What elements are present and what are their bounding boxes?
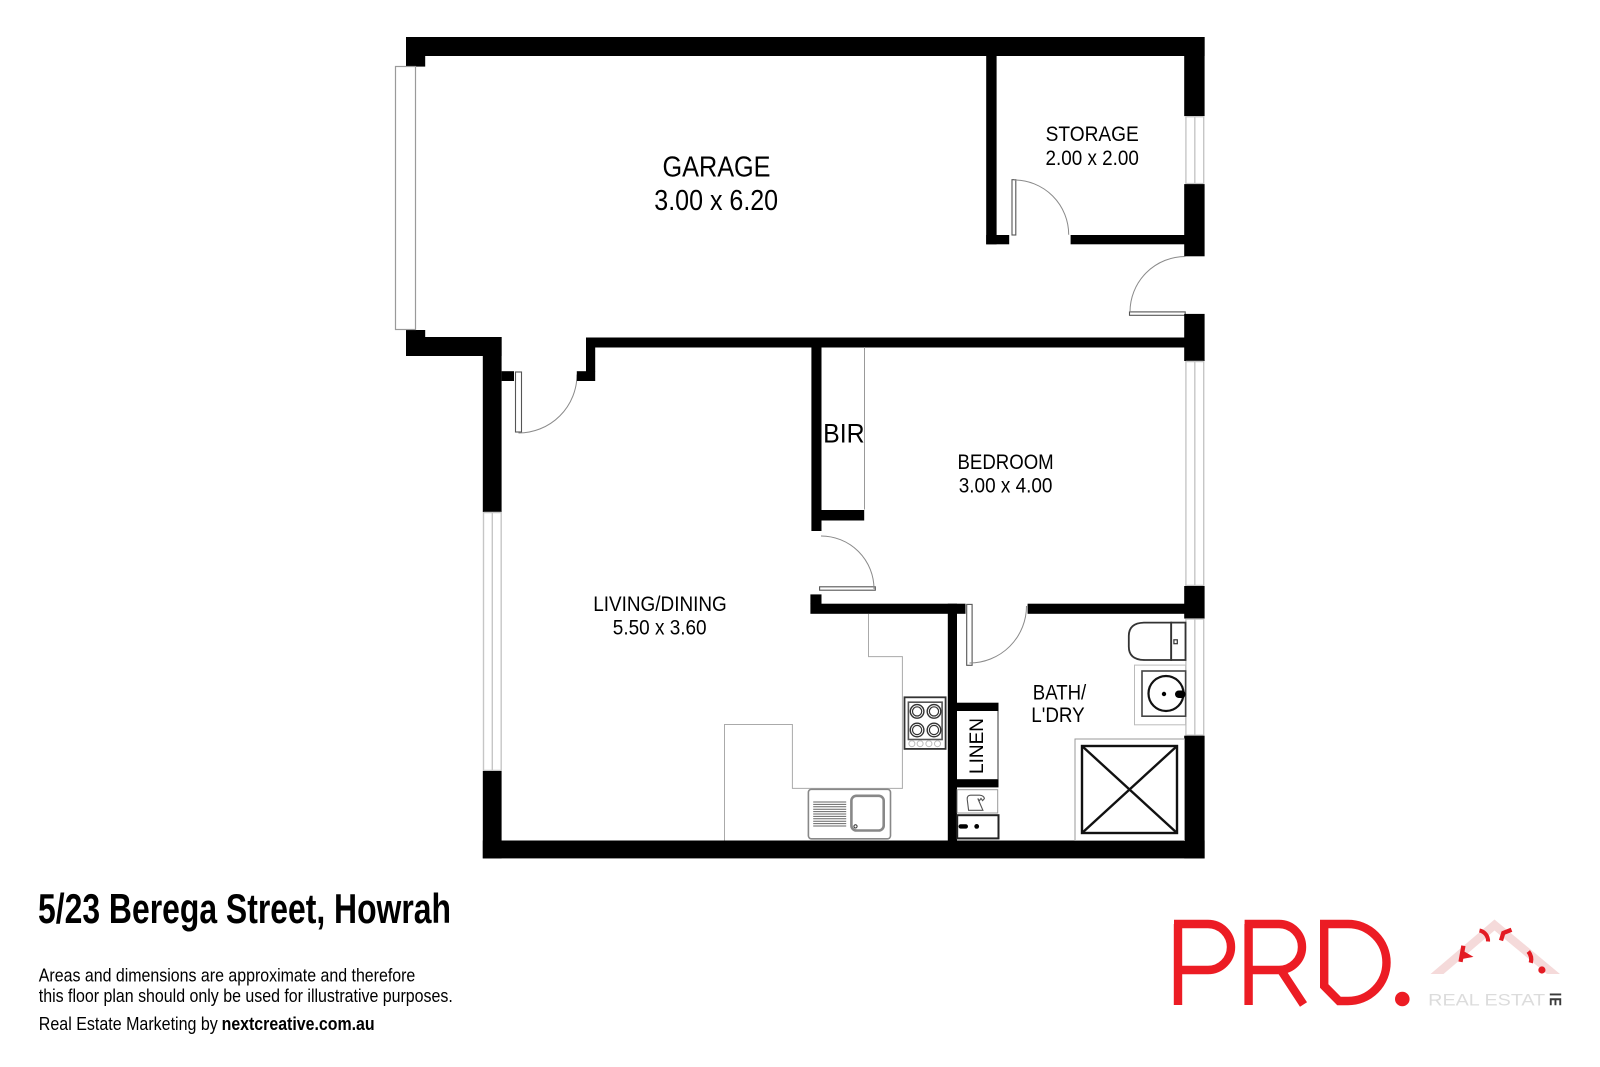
svg-text:2.00 x 2.00: 2.00 x 2.00: [1046, 146, 1139, 170]
svg-text:GARAGE: GARAGE: [663, 151, 771, 183]
svg-text:Real Estate Marketing by: Real Estate Marketing by: [39, 1014, 218, 1034]
svg-text:this floor plan should only be: this floor plan should only be used for …: [39, 986, 453, 1006]
svg-text:BIR: BIR: [823, 419, 865, 449]
svg-text:REAL ESTAT: REAL ESTAT: [1428, 990, 1545, 1009]
svg-text:3.00 x 6.20: 3.00 x 6.20: [654, 185, 778, 217]
svg-text:LIVING/DINING: LIVING/DINING: [593, 592, 727, 616]
svg-text:3.00 x 4.00: 3.00 x 4.00: [959, 474, 1053, 498]
svg-text:5/23 Berega Street, Howrah: 5/23 Berega Street, Howrah: [38, 885, 451, 932]
svg-text:STORAGE: STORAGE: [1046, 122, 1139, 146]
svg-text:L'DRY: L'DRY: [1031, 703, 1084, 727]
svg-text:LINEN: LINEN: [966, 718, 988, 774]
svg-text:5.50 x 3.60: 5.50 x 3.60: [613, 616, 707, 640]
svg-text:Areas and dimensions are appro: Areas and dimensions are approximate and…: [39, 966, 416, 986]
svg-text:BATH/: BATH/: [1033, 681, 1086, 705]
svg-text:BEDROOM: BEDROOM: [958, 450, 1054, 474]
svg-text:nextcreative.com.au: nextcreative.com.au: [222, 1014, 375, 1034]
